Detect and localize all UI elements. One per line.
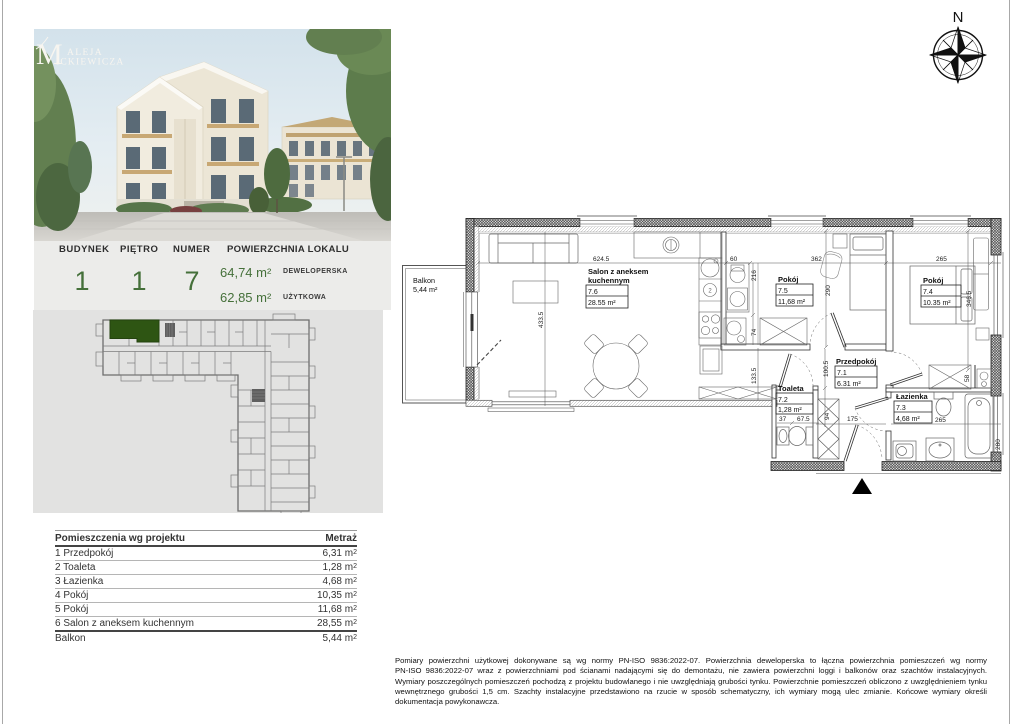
svg-text:Balkon: Balkon (413, 276, 435, 285)
svg-text:60: 60 (730, 256, 738, 263)
svg-text:11,68 m²: 11,68 m² (778, 299, 806, 306)
svg-text:290: 290 (825, 285, 832, 296)
svg-text:58: 58 (964, 374, 971, 382)
svg-text:265: 265 (935, 417, 946, 424)
svg-text:100.5: 100.5 (823, 360, 830, 377)
svg-text:433.5: 433.5 (538, 311, 545, 328)
svg-text:7.5: 7.5 (778, 288, 788, 295)
svg-text:Łazienka: Łazienka (896, 392, 929, 401)
svg-text:265: 265 (936, 256, 947, 263)
svg-text:67.5: 67.5 (797, 416, 810, 423)
svg-text:624.5: 624.5 (593, 256, 610, 263)
svg-text:94: 94 (824, 412, 831, 420)
svg-text:37: 37 (779, 416, 787, 423)
svg-text:1,28 m²: 1,28 m² (778, 407, 802, 414)
svg-text:216: 216 (751, 270, 758, 281)
svg-text:28.55 m²: 28.55 m² (588, 300, 616, 307)
svg-text:Salon z aneksem: Salon z aneksem (588, 267, 649, 276)
svg-text:280: 280 (995, 439, 1002, 450)
svg-text:7.2: 7.2 (778, 397, 788, 404)
svg-text:6.31 m²: 6.31 m² (837, 381, 861, 388)
svg-text:ICKIEWICZA: ICKIEWICZA (56, 58, 124, 68)
svg-text:7.4: 7.4 (923, 289, 933, 296)
svg-text:133.5: 133.5 (751, 367, 758, 384)
svg-text:74: 74 (751, 328, 758, 336)
svg-text:Toaleta: Toaleta (778, 384, 805, 393)
svg-text:7.1: 7.1 (837, 370, 847, 377)
svg-text:362: 362 (811, 256, 822, 263)
svg-text:Pokój: Pokój (778, 275, 798, 284)
svg-text:7.3: 7.3 (896, 405, 906, 412)
svg-text:7.6: 7.6 (588, 289, 598, 296)
svg-text:4,68 m²: 4,68 m² (896, 416, 920, 423)
svg-text:5,44 m²: 5,44 m² (413, 285, 438, 294)
svg-text:346.5: 346.5 (966, 290, 973, 307)
svg-text:ALEJA: ALEJA (67, 48, 103, 58)
svg-text:kuchennym: kuchennym (588, 276, 630, 285)
svg-text:N: N (953, 9, 964, 26)
svg-text:175: 175 (847, 416, 858, 423)
svg-text:2: 2 (708, 289, 712, 295)
svg-text:10.35 m²: 10.35 m² (923, 300, 951, 307)
svg-text:Pokój: Pokój (923, 276, 943, 285)
svg-text:Przedpokój: Przedpokój (836, 357, 876, 366)
